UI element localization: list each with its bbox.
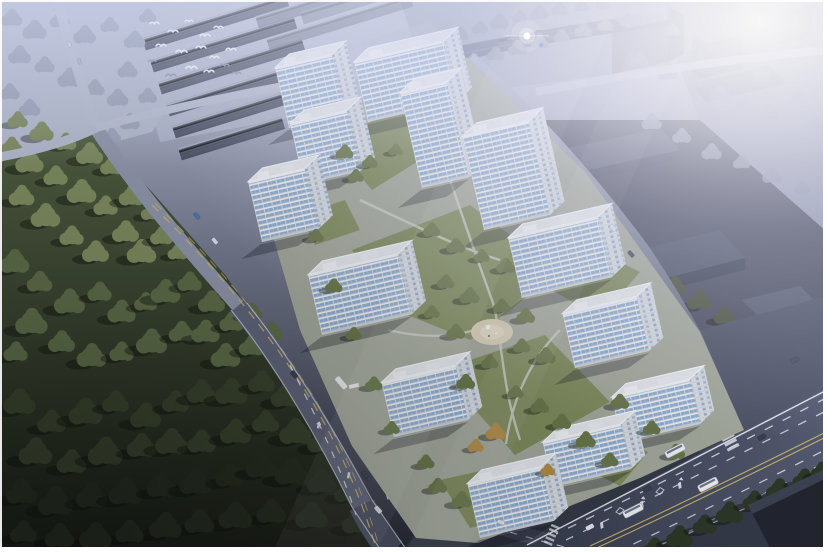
atmosphere-overlays: [0, 0, 827, 552]
architectural-rendering: [0, 0, 827, 552]
